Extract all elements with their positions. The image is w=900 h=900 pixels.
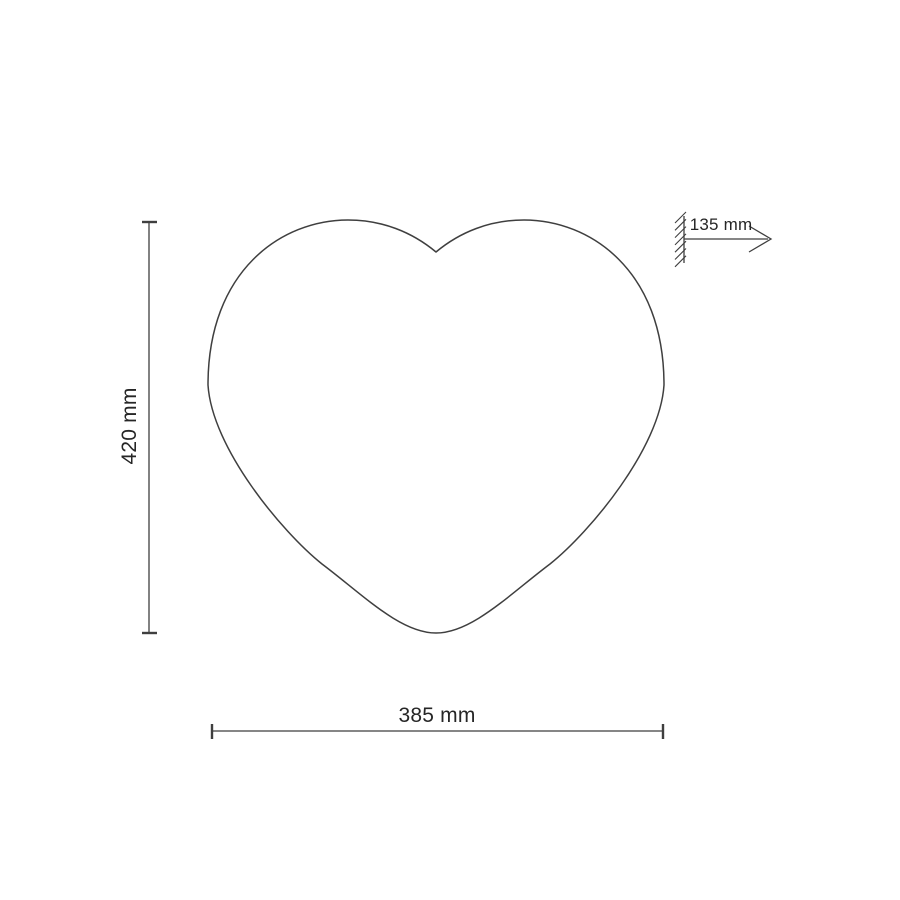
width-dimension-label: 385 mm: [398, 704, 475, 728]
height-dimension-label: 420 mm: [118, 387, 142, 464]
dimension-drawing: 420 mm 385 mm 135 mm: [0, 0, 900, 900]
depth-dimension-label: 135 mm: [690, 215, 753, 235]
heart-outline: [208, 220, 664, 633]
height-dimension-line: [142, 222, 157, 633]
